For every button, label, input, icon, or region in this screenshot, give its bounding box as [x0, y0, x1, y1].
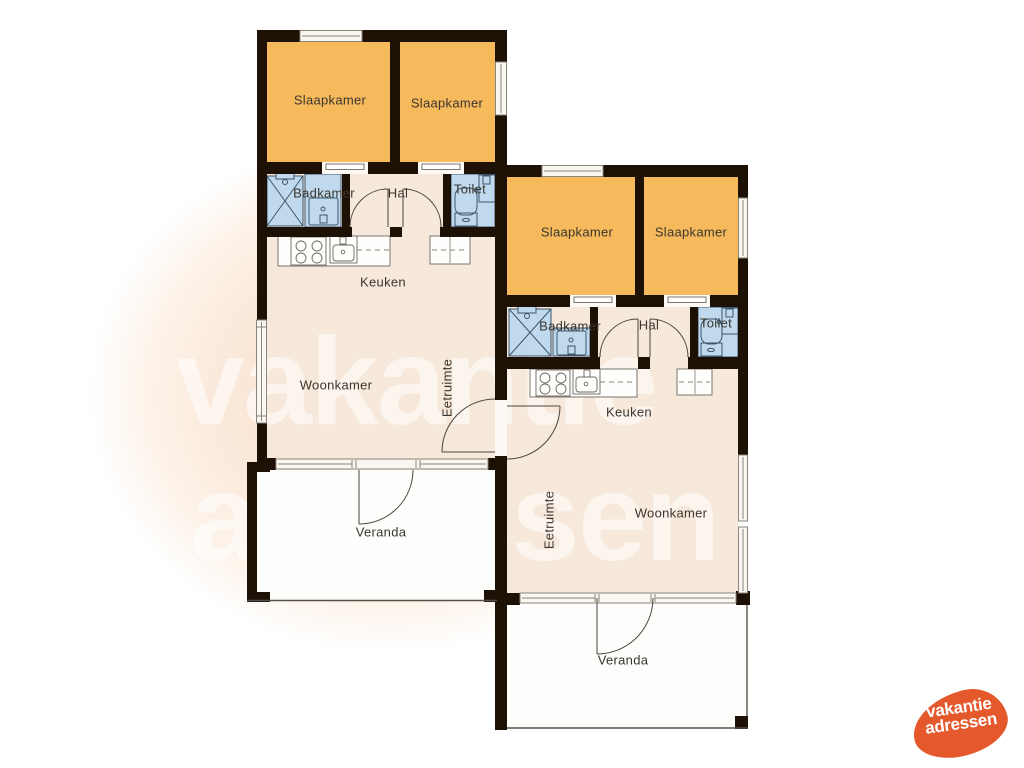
- unit1-bedroom-a-floor: [267, 42, 390, 162]
- unit2-shower-head: [525, 314, 530, 319]
- unit2-toilet-sink: [722, 308, 738, 334]
- floorplan-page: vakantie adressen: [0, 0, 1024, 768]
- shared-wall: [495, 30, 507, 730]
- floorplan-drawing: vakantie adressen: [0, 0, 1024, 768]
- unit2-kitchen-sink: [573, 369, 600, 394]
- vakantieadressen-logo: vakantie adressen: [898, 686, 1022, 766]
- unit2-wall-bottom-left: [507, 593, 520, 605]
- unit1-bedroom-a-door: [326, 164, 364, 170]
- unit1-shower-head: [283, 180, 288, 185]
- unit1-wall-bottom-right: [488, 458, 507, 470]
- unit2-hall-toilet-divider: [690, 307, 698, 357]
- unit2-veranda-floor: [507, 603, 748, 728]
- unit2-veranda-corner: [735, 716, 748, 729]
- unit1-bathrow-wall-a: [267, 227, 352, 237]
- unit1-bathrow-wall-c: [440, 227, 495, 237]
- unit2-bedroom-b-door: [668, 297, 706, 303]
- unit1-hall-toilet-divider: [443, 174, 451, 230]
- unit1-wall-top: [257, 30, 507, 42]
- unit2-bedroom-b-floor: [644, 177, 738, 295]
- unit2-bathrow-wall-b: [638, 357, 650, 369]
- unit2-bathrow-wall-c: [688, 357, 738, 369]
- unit1-bedroom-divider: [390, 42, 400, 162]
- unit2-bath-hall-divider: [590, 307, 598, 357]
- unit1-toilet-sink: [479, 175, 495, 202]
- connecting-doorway: [495, 400, 507, 456]
- unit1-veranda-wall: [247, 462, 257, 602]
- unit1-bedroom-b-door: [422, 164, 460, 170]
- unit2-bathrow-wall-a: [507, 357, 600, 369]
- unit1-veranda-stub-top: [247, 462, 270, 472]
- unit2-wall-top: [495, 165, 748, 177]
- unit1-bathrow-wall-b: [390, 227, 402, 237]
- unit1-bath-hall-divider: [342, 174, 350, 230]
- unit2-bedroom-divider: [635, 177, 644, 295]
- unit2-bedroom-a-door: [574, 297, 612, 303]
- unit1-kitchen-sink: [330, 236, 357, 263]
- unit2-bedroom-a-floor: [507, 177, 635, 295]
- unit1-bedroom-b-floor: [400, 42, 495, 162]
- unit1-bath-sink: [309, 198, 338, 225]
